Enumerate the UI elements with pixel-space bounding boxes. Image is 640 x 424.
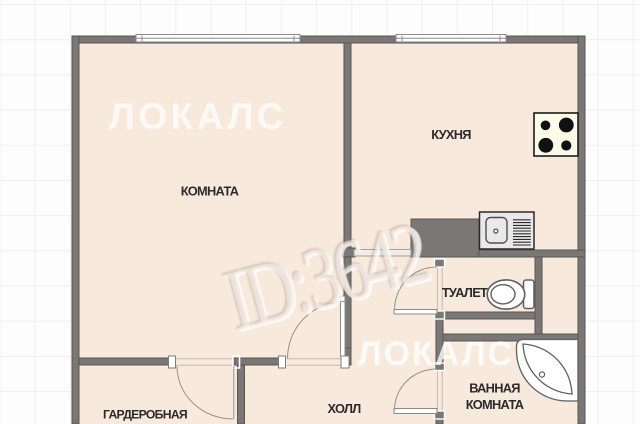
svg-text:КОМНАТА: КОМНАТА bbox=[181, 184, 239, 199]
svg-text:ВАННАЯ: ВАННАЯ bbox=[469, 381, 520, 396]
svg-text:ГАРДЕРОБНАЯ: ГАРДЕРОБНАЯ bbox=[103, 408, 187, 422]
svg-text:КУХНЯ: КУХНЯ bbox=[431, 127, 471, 142]
svg-text:КОМНАТА: КОМНАТА bbox=[466, 397, 524, 412]
svg-text:ХОЛЛ: ХОЛЛ bbox=[328, 401, 362, 416]
